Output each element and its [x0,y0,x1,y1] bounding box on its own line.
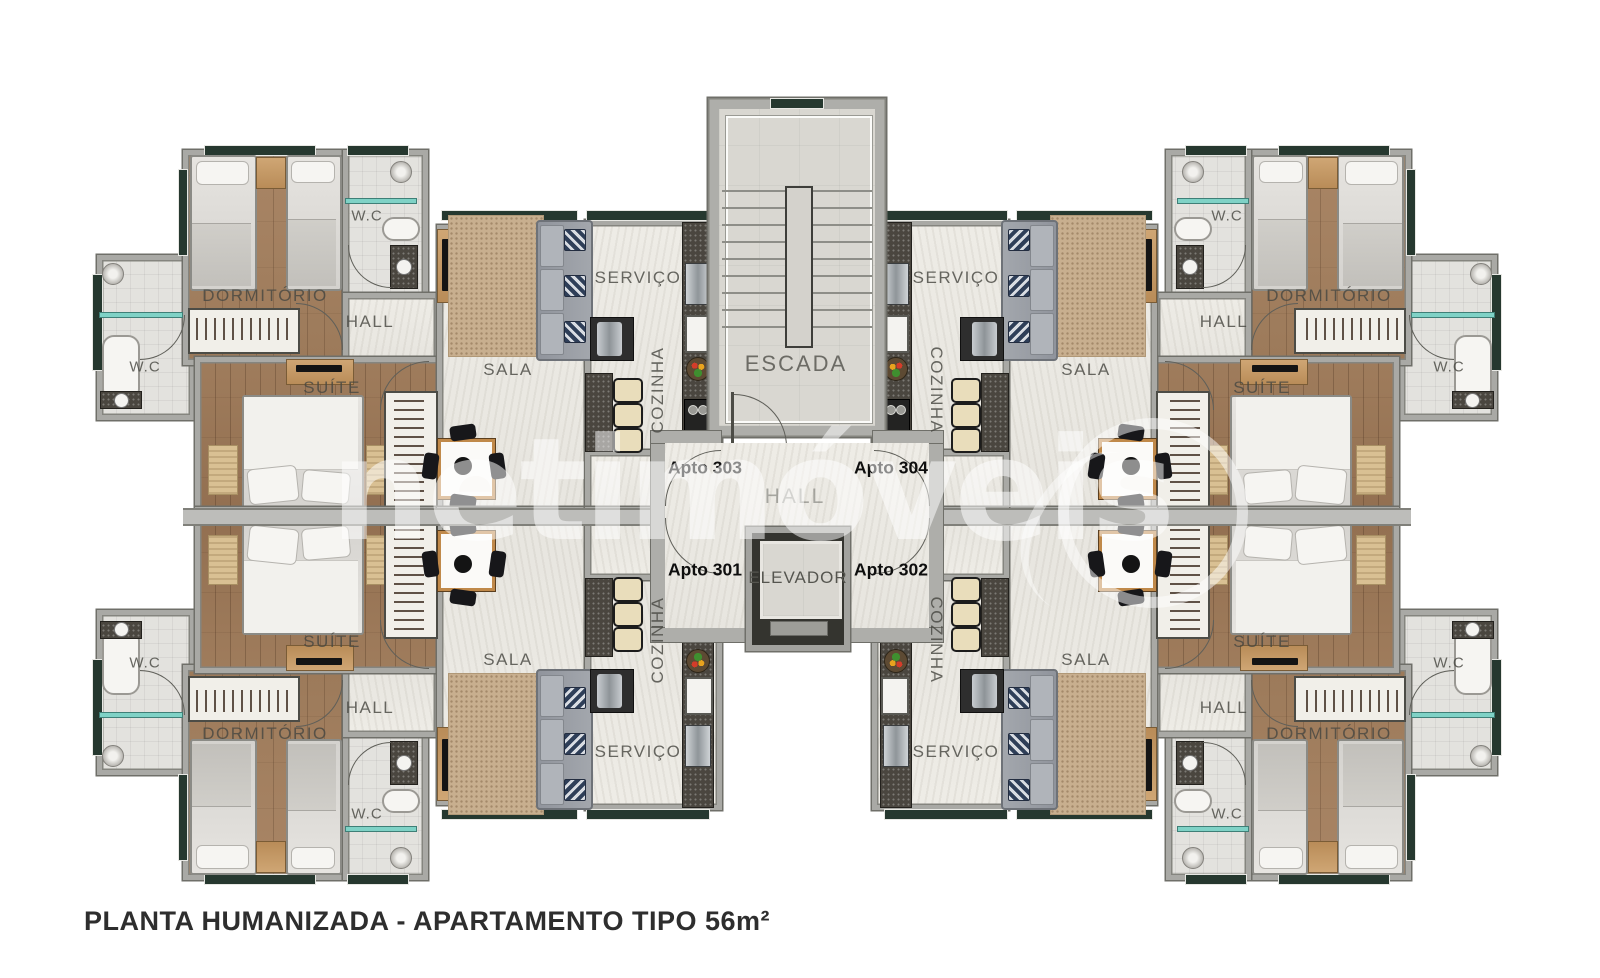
apto-303-label: Apto 303 [668,458,742,479]
label-sala: SALA [1061,360,1110,380]
label-wc_suite: W.C [1433,655,1464,672]
label-hall: HALL [346,312,395,332]
label-cozinha: COZINHA [648,347,668,434]
label-dormitorio: DORMITÓRIO [1266,724,1392,744]
label-sala: SALA [483,650,532,670]
label-hall: HALL [1200,312,1249,332]
label-servico: SERVIÇO [913,742,1000,762]
elevator-label: ELEVADOR [748,568,847,588]
label-dormitorio: DORMITÓRIO [202,724,328,744]
label-servico: SERVIÇO [595,742,682,762]
label-wc_social: W.C [351,208,382,225]
label-cozinha: COZINHA [926,347,946,434]
label-servico: SERVIÇO [595,268,682,288]
label-cozinha: COZINHA [648,597,668,684]
apto-302-label: Apto 302 [854,560,928,581]
label-suite: SUÍTE [303,378,361,398]
label-sala: SALA [483,360,532,380]
label-sala: SALA [1061,650,1110,670]
stairs-label: ESCADA [745,351,847,377]
label-wc_social: W.C [351,806,382,823]
label-wc_social: W.C [1211,208,1242,225]
label-cozinha: COZINHA [926,597,946,684]
floor-plan: DORMITÓRIOW.CHALLSUÍTEW.CSALASERVIÇOCOZI… [0,0,1600,978]
label-hall: HALL [346,698,395,718]
label-wc_social: W.C [1211,806,1242,823]
label-wc_suite: W.C [129,655,160,672]
label-hall: HALL [1200,698,1249,718]
label-dormitorio: DORMITÓRIO [1266,286,1392,306]
page-title: PLANTA HUMANIZADA - APARTAMENTO TIPO 56m… [84,906,770,937]
apto-304-label: Apto 304 [854,458,928,479]
label-wc_suite: W.C [129,359,160,376]
apto-301-label: Apto 301 [668,560,742,581]
central-hall-label: HALL [765,485,826,509]
label-suite: SUÍTE [303,632,361,652]
label-servico: SERVIÇO [913,268,1000,288]
label-wc_suite: W.C [1433,359,1464,376]
label-suite: SUÍTE [1233,378,1291,398]
label-dormitorio: DORMITÓRIO [202,286,328,306]
label-suite: SUÍTE [1233,632,1291,652]
